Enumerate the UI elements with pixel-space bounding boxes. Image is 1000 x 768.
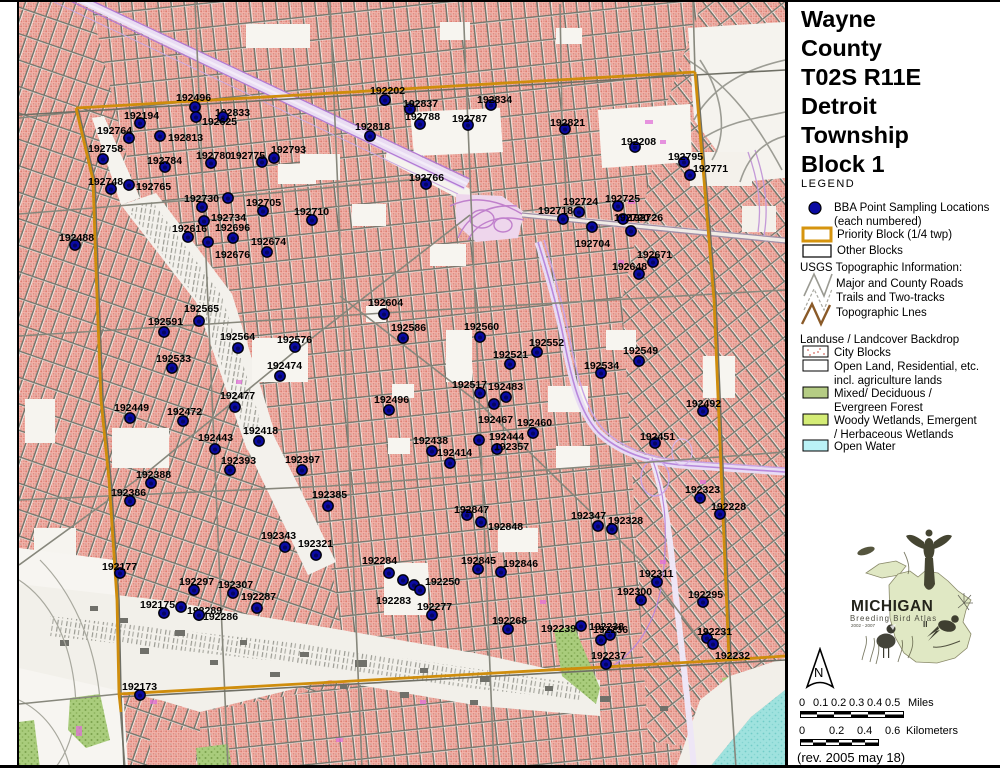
svg-text:192813: 192813 — [168, 132, 203, 144]
svg-text:192268: 192268 — [492, 615, 527, 627]
svg-text:192231: 192231 — [697, 626, 732, 638]
svg-text:192549: 192549 — [623, 345, 658, 357]
svg-text:192560: 192560 — [464, 321, 499, 333]
svg-text:192393: 192393 — [221, 455, 256, 467]
svg-text:MICHIGAN: MICHIGAN — [851, 598, 933, 615]
svg-text:192787: 192787 — [452, 113, 487, 125]
svg-text:192648: 192648 — [612, 261, 647, 273]
svg-text:192357: 192357 — [494, 441, 529, 453]
svg-text:192845: 192845 — [461, 555, 496, 567]
svg-text:192472: 192472 — [167, 406, 202, 418]
svg-text:192671: 192671 — [637, 249, 672, 261]
svg-text:192576: 192576 — [277, 334, 312, 346]
svg-text:192821: 192821 — [550, 117, 585, 129]
svg-text:192477: 192477 — [220, 390, 255, 402]
svg-text:192295: 192295 — [688, 589, 723, 601]
svg-text:192818: 192818 — [355, 121, 390, 133]
svg-text:2002 - 2007: 2002 - 2007 — [851, 623, 876, 628]
svg-text:192847: 192847 — [454, 504, 489, 516]
svg-text:192837: 192837 — [403, 98, 438, 110]
svg-text:192438: 192438 — [413, 435, 448, 447]
svg-text:192321: 192321 — [298, 538, 333, 550]
svg-text:192385: 192385 — [312, 489, 347, 501]
svg-text:192488: 192488 — [59, 232, 94, 244]
svg-text:192710: 192710 — [294, 206, 329, 218]
svg-text:192467: 192467 — [478, 414, 513, 426]
svg-text:192194: 192194 — [124, 110, 159, 122]
svg-text:192496: 192496 — [176, 92, 211, 104]
svg-text:192676: 192676 — [215, 249, 250, 261]
svg-text:192307: 192307 — [218, 579, 253, 591]
svg-text:192286: 192286 — [203, 611, 238, 623]
svg-text:192451: 192451 — [640, 431, 675, 443]
svg-text:192343: 192343 — [261, 530, 296, 542]
svg-text:192674: 192674 — [251, 236, 286, 248]
svg-text:192775: 192775 — [230, 150, 265, 162]
svg-text:192758: 192758 — [88, 143, 123, 155]
svg-text:192793: 192793 — [271, 144, 306, 156]
svg-text:192604: 192604 — [368, 297, 403, 309]
svg-text:192323: 192323 — [685, 484, 720, 496]
svg-text:192236: 192236 — [593, 624, 628, 636]
svg-text:192277: 192277 — [417, 601, 452, 613]
svg-text:192474: 192474 — [267, 360, 302, 372]
svg-text:192460: 192460 — [517, 417, 552, 429]
svg-text:192397: 192397 — [285, 454, 320, 466]
svg-text:192730: 192730 — [184, 193, 219, 205]
svg-text:192704: 192704 — [575, 238, 610, 250]
svg-text:192284: 192284 — [362, 555, 397, 567]
svg-text:192846: 192846 — [503, 558, 538, 570]
svg-text:192237: 192237 — [591, 650, 626, 662]
svg-text:192202: 192202 — [370, 85, 405, 97]
svg-text:192834: 192834 — [477, 94, 512, 106]
svg-text:192232: 192232 — [715, 650, 750, 662]
svg-text:N: N — [814, 665, 823, 680]
svg-text:192418: 192418 — [243, 425, 278, 437]
svg-text:192443: 192443 — [198, 432, 233, 444]
svg-text:192297: 192297 — [179, 576, 214, 588]
svg-text:192533: 192533 — [156, 353, 191, 365]
svg-text:192388: 192388 — [136, 469, 171, 481]
svg-text:192250: 192250 — [425, 576, 460, 588]
svg-text:192239: 192239 — [541, 623, 576, 635]
svg-text:192208: 192208 — [621, 136, 656, 148]
svg-text:192534: 192534 — [584, 360, 619, 372]
svg-text:192795: 192795 — [668, 151, 703, 163]
svg-text:192748: 192748 — [88, 176, 123, 188]
svg-text:192287: 192287 — [241, 591, 276, 603]
svg-text:192228: 192228 — [711, 501, 746, 513]
svg-text:192764: 192764 — [97, 125, 132, 137]
svg-text:192496: 192496 — [374, 394, 409, 406]
svg-text:192788: 192788 — [405, 111, 440, 123]
svg-text:192492: 192492 — [686, 398, 721, 410]
svg-text:192725: 192725 — [605, 193, 640, 205]
svg-text:192720: 192720 — [614, 212, 649, 224]
svg-text:192347: 192347 — [571, 510, 606, 522]
svg-text:192552: 192552 — [529, 337, 564, 349]
svg-text:192724: 192724 — [563, 196, 598, 208]
svg-text:II: II — [923, 620, 927, 629]
svg-text:192328: 192328 — [608, 515, 643, 527]
svg-text:192521: 192521 — [493, 349, 528, 361]
svg-text:192449: 192449 — [114, 402, 149, 414]
svg-text:192616: 192616 — [172, 223, 207, 235]
svg-text:192586: 192586 — [391, 322, 426, 334]
svg-text:192414: 192414 — [437, 447, 472, 459]
svg-text:192517: 192517 — [452, 379, 487, 391]
svg-text:192765: 192765 — [136, 181, 171, 193]
svg-text:192283: 192283 — [376, 595, 411, 607]
svg-text:192565: 192565 — [184, 303, 219, 315]
svg-text:192173: 192173 — [122, 681, 157, 693]
svg-text:192784: 192784 — [147, 155, 182, 167]
svg-text:192564: 192564 — [220, 331, 255, 343]
svg-text:192591: 192591 — [148, 316, 183, 328]
svg-text:192483: 192483 — [488, 381, 523, 393]
svg-text:192177: 192177 — [102, 561, 137, 573]
svg-text:192766: 192766 — [409, 172, 444, 184]
svg-text:192780: 192780 — [196, 150, 231, 162]
svg-text:192175: 192175 — [140, 599, 175, 611]
svg-text:192848: 192848 — [488, 521, 523, 533]
svg-text:192386: 192386 — [111, 487, 146, 499]
svg-text:192300: 192300 — [617, 586, 652, 598]
svg-text:192771: 192771 — [693, 163, 728, 175]
svg-text:192625: 192625 — [202, 116, 237, 128]
svg-text:192311: 192311 — [639, 568, 674, 580]
